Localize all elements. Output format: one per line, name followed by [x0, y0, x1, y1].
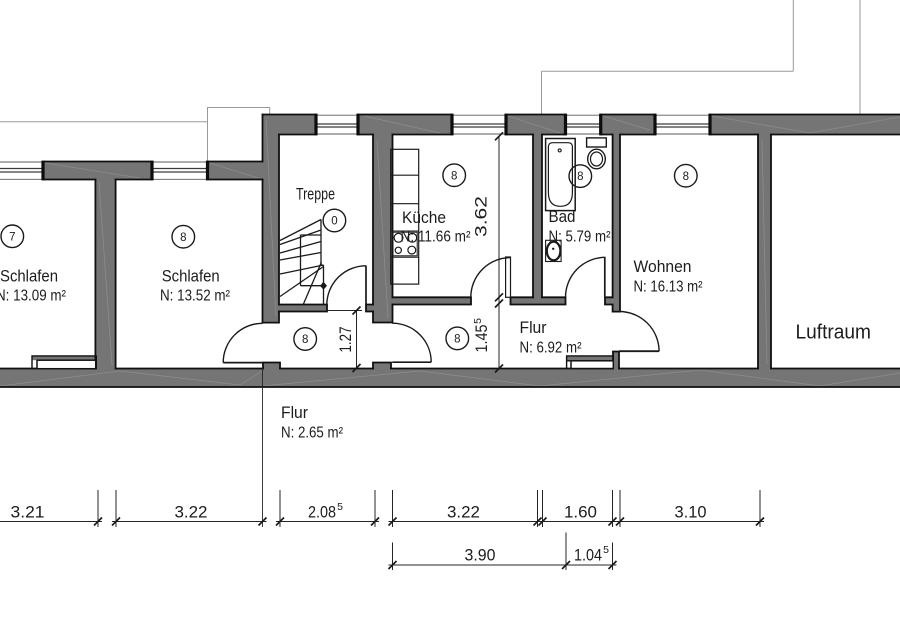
svg-text:Schlafen: Schlafen	[0, 267, 58, 286]
svg-text:5: 5	[337, 501, 343, 513]
svg-text:N: 13.09 m²: N: 13.09 m²	[0, 288, 66, 305]
svg-text:Treppe: Treppe	[296, 185, 335, 204]
svg-text:8: 8	[451, 170, 457, 182]
svg-text:Küche: Küche	[402, 208, 446, 227]
svg-text:2.08: 2.08	[308, 504, 336, 522]
svg-text:8: 8	[302, 334, 308, 346]
svg-text:N: 5.79 m²: N: 5.79 m²	[549, 229, 611, 246]
svg-text:Luftraum: Luftraum	[796, 321, 872, 344]
svg-text:5: 5	[603, 544, 609, 556]
svg-text:1.04: 1.04	[574, 547, 602, 565]
svg-text:3.22: 3.22	[447, 504, 480, 522]
svg-text:N: 6.92 m²: N: 6.92 m²	[520, 340, 582, 357]
svg-text:Flur: Flur	[520, 318, 547, 337]
svg-text:Bad: Bad	[549, 207, 576, 226]
svg-text:3.10: 3.10	[675, 504, 707, 522]
svg-text:1.27: 1.27	[337, 327, 355, 353]
svg-text:Schlafen: Schlafen	[162, 267, 220, 286]
svg-text:N: 11.66 m²: N: 11.66 m²	[401, 228, 471, 245]
svg-text:3.62: 3.62	[473, 196, 491, 237]
svg-text:3.22: 3.22	[175, 504, 208, 522]
svg-text:8: 8	[180, 232, 186, 244]
svg-text:N: 2.65 m²: N: 2.65 m²	[281, 425, 343, 442]
svg-text:3.21: 3.21	[11, 504, 45, 522]
svg-text:1.45: 1.45	[473, 325, 491, 353]
svg-text:3.90: 3.90	[465, 547, 496, 565]
svg-text:Wohnen: Wohnen	[634, 257, 692, 276]
svg-text:7: 7	[9, 231, 15, 243]
svg-text:8: 8	[577, 171, 583, 183]
svg-text:N: 16.13 m²: N: 16.13 m²	[634, 279, 703, 296]
svg-text:0: 0	[331, 216, 337, 228]
svg-text:8: 8	[683, 171, 689, 183]
svg-text:Flur: Flur	[281, 403, 308, 422]
svg-text:N: 13.52 m²: N: 13.52 m²	[160, 288, 230, 305]
svg-text:8: 8	[454, 334, 460, 346]
svg-text:5: 5	[472, 318, 484, 324]
svg-text:1.60: 1.60	[564, 504, 597, 522]
